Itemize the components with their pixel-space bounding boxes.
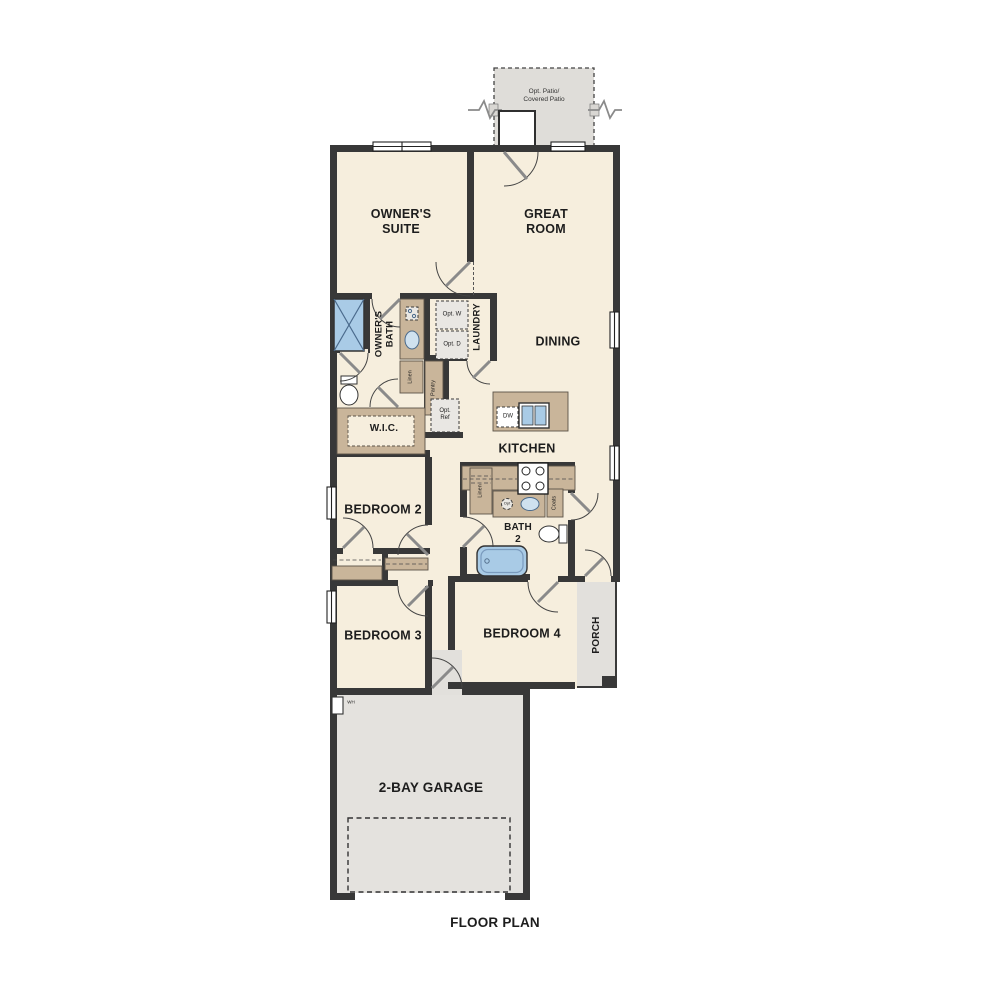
window-icon	[610, 312, 619, 348]
patio-label: Opt. Patio/ Covered Patio	[523, 88, 564, 104]
opt-washer-label: Opt. W	[442, 311, 462, 318]
floor-plan-drawing	[0, 0, 1000, 1000]
coats-label: Coats	[552, 496, 559, 510]
opt-ref-label: Opt. Ref	[435, 408, 455, 422]
room-label-owners-bath: OWNER'S BATH	[374, 308, 397, 360]
room-label-bedroom4: BEDROOM 4	[483, 627, 561, 642]
window-icon	[327, 591, 336, 623]
porch-step	[602, 676, 616, 688]
dishwasher-label: DW	[503, 413, 513, 420]
room-label-porch: PORCH	[591, 616, 603, 653]
kitchen-sink-icon	[519, 403, 549, 428]
patio-label-line1: Opt. Patio/	[523, 88, 564, 96]
pantry-label: Pantry	[431, 380, 438, 396]
shower-icon	[334, 299, 364, 351]
toilet-icon	[340, 376, 358, 405]
floor-plan-canvas: Opt. Patio/ Covered Patio OWNER'S SUITE …	[0, 0, 1000, 1000]
room-label-owners-suite: OWNER'S SUITE	[361, 207, 441, 237]
window-icon	[327, 487, 336, 519]
opt-fixture-icon	[406, 307, 418, 320]
bedroom2-closet-shelf	[332, 566, 382, 580]
room-label-garage: 2-BAY GARAGE	[379, 780, 483, 796]
range-icon	[518, 463, 548, 494]
toilet-icon	[539, 525, 567, 543]
room-label-bath2: BATH 2	[500, 522, 536, 546]
room-label-bedroom3: BEDROOM 3	[344, 629, 422, 644]
room-label-dining: DINING	[536, 335, 581, 350]
room-label-kitchen: KITCHEN	[499, 442, 556, 457]
window-icon	[551, 142, 585, 151]
patio-label-line2: Covered Patio	[523, 96, 564, 104]
linen-hall-label: Linen	[478, 484, 485, 497]
opt-circle-label: Opt	[504, 502, 510, 507]
patio-door-jamb	[499, 111, 535, 149]
page-title: FLOOR PLAN	[450, 915, 540, 931]
linen-owners-label: Linen	[408, 370, 415, 383]
room-label-great-room: GREAT ROOM	[516, 207, 576, 237]
room-label-laundry: LAUNDRY	[471, 303, 482, 351]
vanity-sink-icon	[405, 331, 419, 349]
water-heater-label: WH	[347, 699, 355, 704]
room-label-bedroom2: BEDROOM 2	[344, 503, 422, 518]
window-icon	[610, 446, 619, 480]
window-icon	[373, 142, 431, 151]
opt-dryer-label: Opt. D	[442, 341, 462, 348]
water-heater-icon	[332, 697, 343, 714]
vanity-sink-icon	[521, 498, 539, 511]
room-label-wic: W.I.C.	[370, 423, 398, 435]
bathtub-icon	[477, 546, 527, 576]
